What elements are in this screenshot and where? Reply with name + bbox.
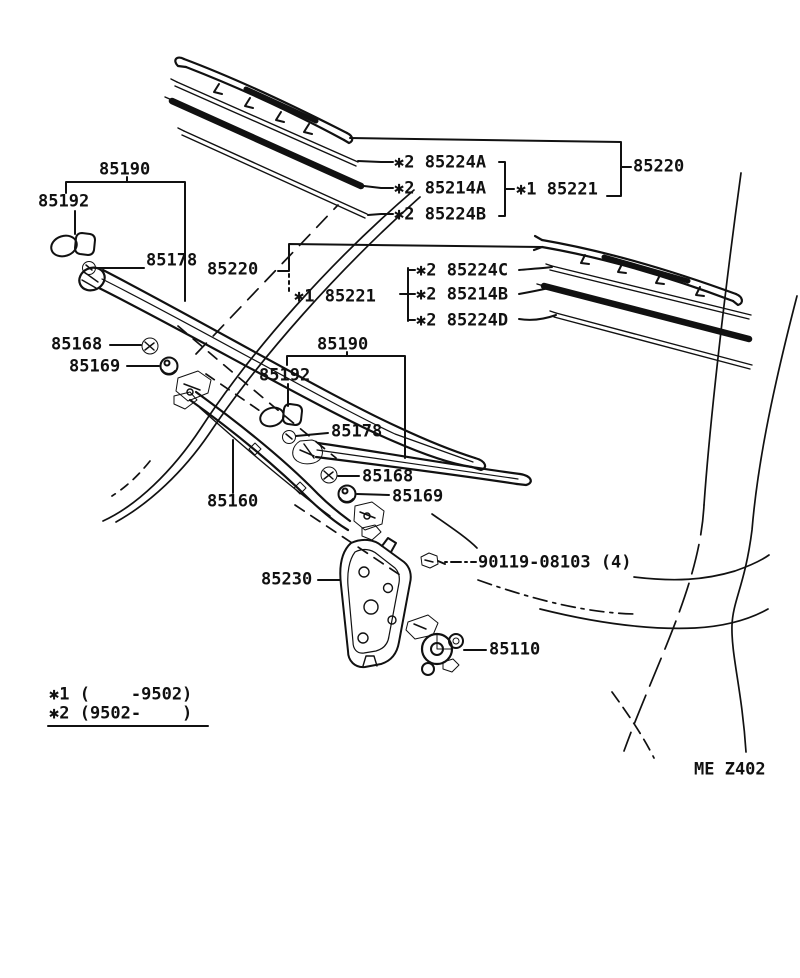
legend-note-2: ✱2 (9502- ): [49, 706, 192, 723]
arm-nut-right: [283, 431, 296, 444]
part-label-85160: 85160: [207, 494, 258, 511]
parts-diagram: ✱2 85224A✱2 85214A✱2 85224B✱1 8522185220…: [0, 0, 800, 978]
diagram-code: ME Z402: [694, 762, 766, 779]
part-label-85221-b: ✱1 85221: [294, 289, 376, 306]
part-label-85168-b: 85168: [362, 469, 413, 486]
pivot-cap-right: [258, 404, 302, 429]
part-label-85168-a: 85168: [51, 337, 102, 354]
mounting-bracket: [340, 538, 410, 667]
grommet-right: [321, 467, 337, 483]
part-label-85224b: ✱2 85224B: [394, 207, 486, 224]
part-label-85224c: ✱2 85224C: [416, 263, 508, 280]
part-label-85230: 85230: [261, 572, 312, 589]
pivot-cap-left: [49, 232, 95, 259]
part-label-85224a: ✱2 85224A: [394, 155, 486, 172]
part-label-85192-a: 85192: [38, 194, 89, 211]
wiper-motor: [406, 615, 463, 675]
part-label-85192-b: 85192: [259, 368, 310, 385]
part-label-85190-a: 85190: [99, 162, 150, 179]
blade-rubber-strips-right: [537, 264, 752, 369]
legend-note-1: ✱1 ( -9502): [49, 687, 192, 704]
part-label-85190-b: 85190: [317, 337, 368, 354]
part-label-85169-a: 85169: [69, 359, 120, 376]
part-label-85220-b: 85220: [207, 262, 258, 279]
part-label-85178-a: 85178: [146, 253, 197, 270]
part-label-85214a: ✱2 85214A: [394, 181, 486, 198]
part-label-90119: 90119-08103 (4): [478, 555, 632, 572]
part-label-85110: 85110: [489, 642, 540, 659]
part-label-85221-a: ✱1 85221: [516, 182, 598, 199]
part-label-85214b: ✱2 85214B: [416, 287, 508, 304]
part-label-85169-b: 85169: [392, 489, 443, 506]
part-label-85220-a: 85220: [633, 159, 684, 176]
washer-left: [161, 358, 178, 375]
part-label-85224d: ✱2 85224D: [416, 313, 508, 330]
bolt: [421, 553, 445, 568]
wiper-blade-top: [175, 58, 352, 143]
part-label-85178-b: 85178: [331, 424, 382, 441]
washer-right: [339, 486, 356, 503]
grommet-left: [142, 338, 158, 354]
